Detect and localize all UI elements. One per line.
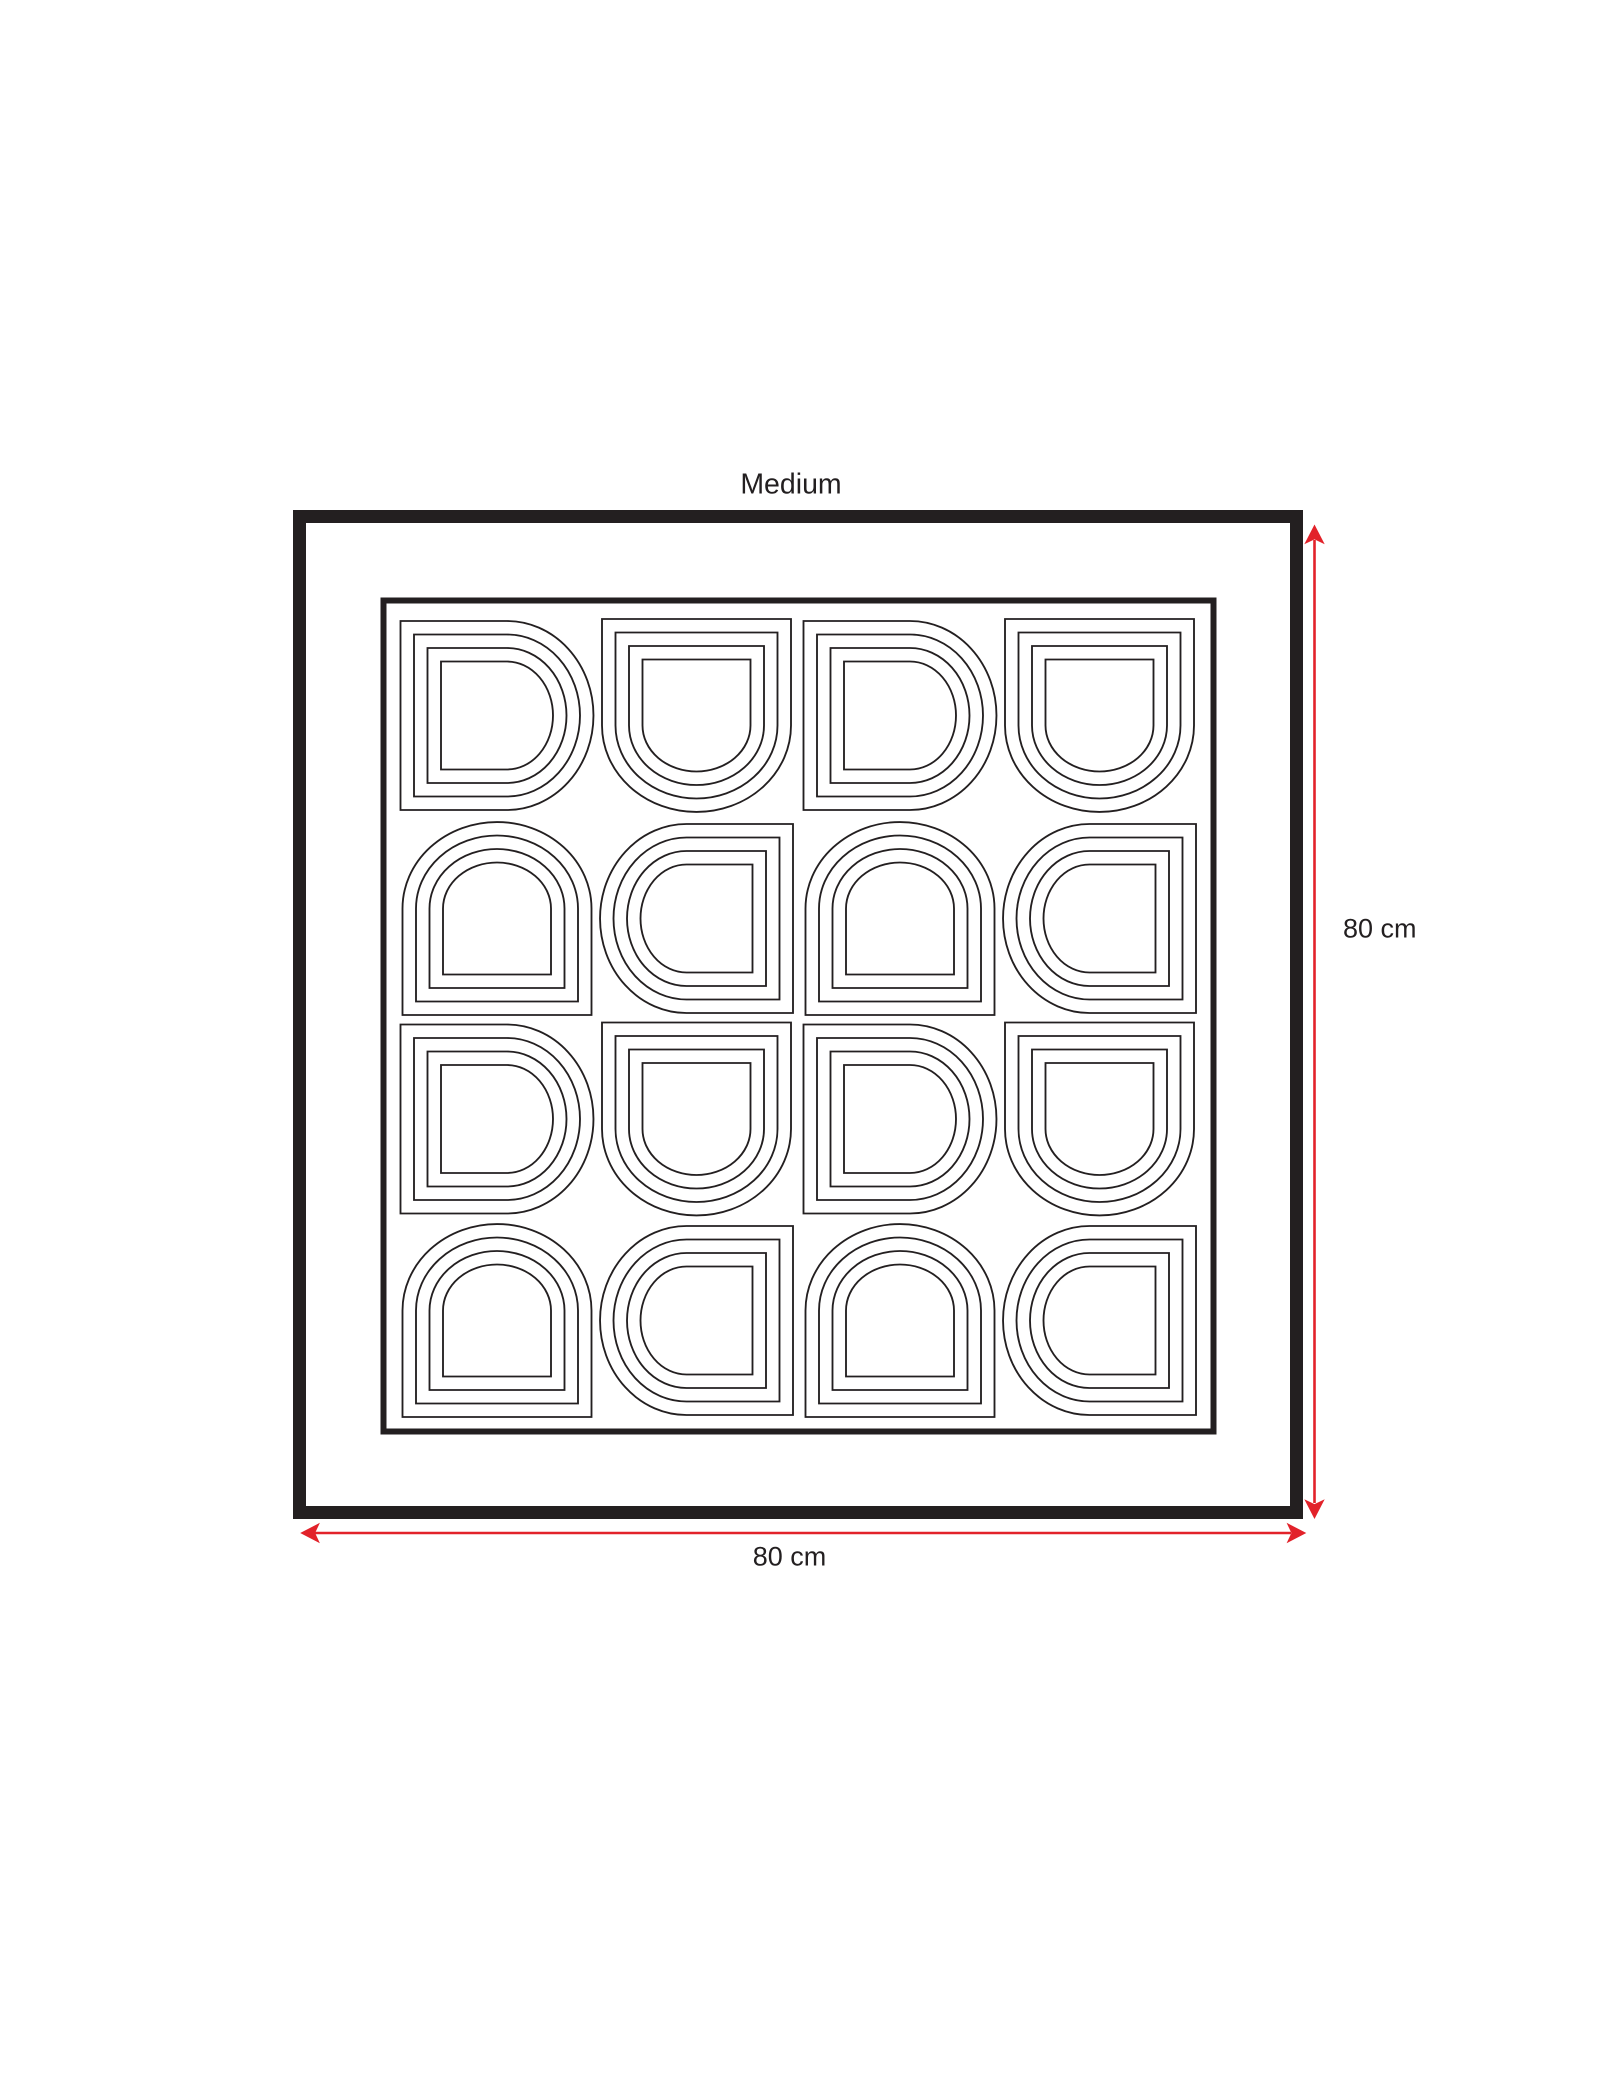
svg-text:80 cm: 80 cm [753, 1542, 827, 1572]
svg-text:80 cm: 80 cm [1343, 914, 1417, 944]
svg-text:Medium: Medium [740, 469, 841, 501]
